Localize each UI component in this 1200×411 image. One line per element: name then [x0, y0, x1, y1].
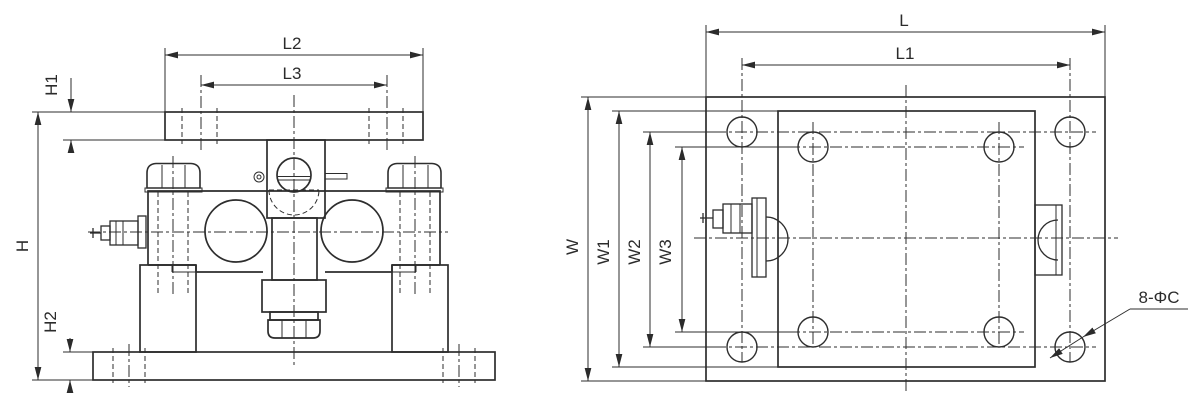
dim-label-l2: L2	[283, 34, 302, 53]
dim-label-h: H	[13, 240, 32, 252]
dim-h1: H1	[42, 74, 165, 153]
hole-callout-label: 8-ΦC	[1139, 288, 1180, 307]
dim-w: W	[563, 97, 706, 381]
end-bracket-top	[1035, 205, 1062, 275]
dim-h: H	[13, 112, 165, 380]
dim-label-l3: L3	[283, 64, 302, 83]
dim-label-l: L	[899, 11, 908, 30]
dim-label-w: W	[563, 239, 582, 255]
dim-h2: H2	[41, 311, 93, 393]
load-pin-assembly	[254, 140, 347, 338]
dim-label-l1: L1	[896, 44, 915, 63]
dim-label-w3: W3	[656, 239, 675, 265]
dim-l3: L3	[201, 64, 387, 85]
front-view: H1 H H2 L2 L3	[13, 34, 495, 393]
shear-web-circle-right	[321, 200, 383, 262]
anti-rotation-tab	[325, 174, 347, 180]
side-pin	[254, 172, 264, 182]
hole-callout: 8-ΦC	[1050, 288, 1188, 358]
dim-w1: W1	[594, 111, 778, 367]
pedestal-right	[392, 265, 448, 352]
top-centerlines	[694, 58, 1118, 392]
dim-label-w2: W2	[625, 239, 644, 265]
technical-drawing-page: H1 H H2 L2 L3	[0, 0, 1200, 411]
dim-label-w1: W1	[594, 239, 613, 265]
front-centerlines	[88, 75, 459, 387]
top-view: L L1 W W1 W2	[563, 11, 1188, 392]
dim-l1: L1	[742, 44, 1070, 65]
drawing-svg: H1 H H2 L2 L3	[0, 0, 1200, 411]
load-button-dome-left	[766, 217, 788, 261]
pedestal-left	[140, 265, 196, 352]
dim-label-h2: H2	[41, 311, 60, 333]
dim-label-h1: H1	[42, 74, 61, 96]
dim-w3: W3	[656, 147, 790, 332]
shear-web-circle-left	[205, 200, 267, 262]
load-button-dome-right	[1038, 220, 1058, 260]
